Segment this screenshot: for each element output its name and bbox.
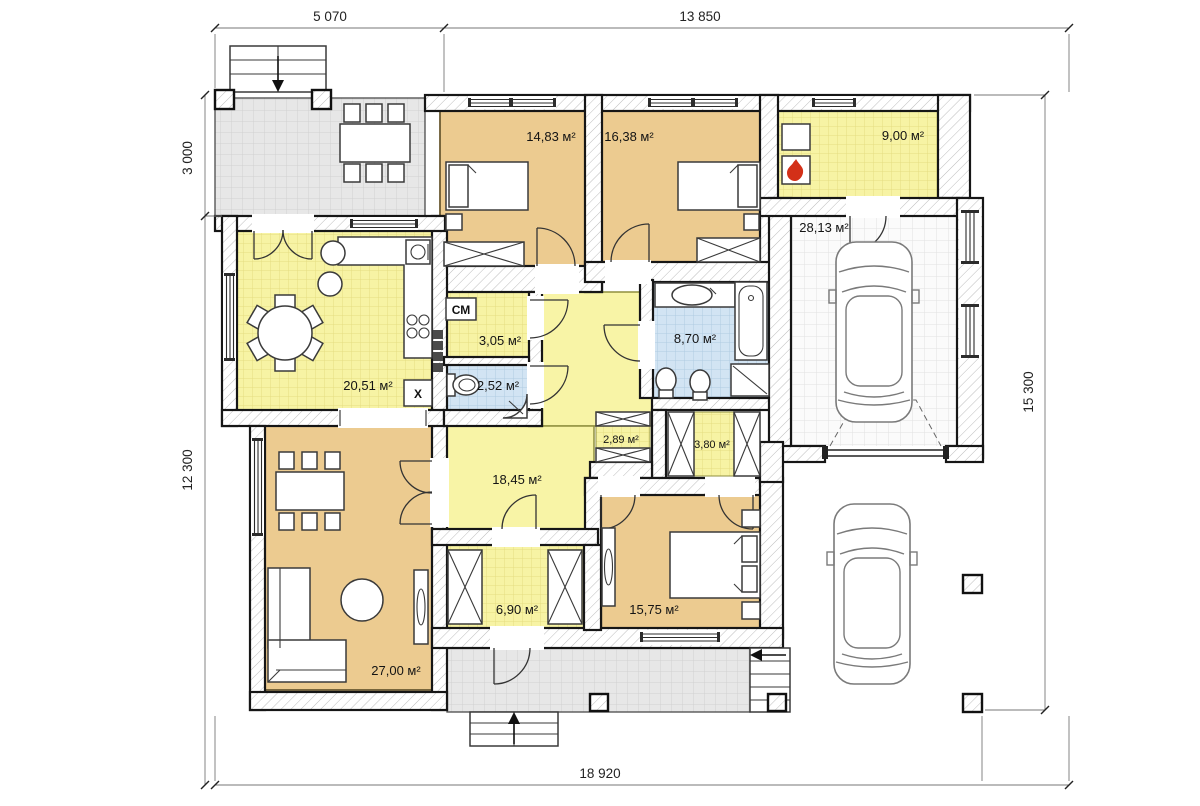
tv-icon	[414, 570, 428, 644]
window-icon	[223, 273, 236, 361]
room-label-closet-1: 2,89 м²	[603, 434, 639, 446]
coffee-table-icon	[341, 579, 383, 621]
wall-segment	[769, 198, 791, 458]
pillar-icon	[215, 90, 234, 109]
floor-plan: Х СМ	[0, 0, 1200, 806]
window-icon	[468, 96, 556, 109]
pillar-icon	[312, 90, 331, 109]
room-label-bedroom-2: 16,38 м²	[604, 129, 654, 144]
window-icon	[959, 304, 981, 358]
room-label-kitchen: 20,51 м²	[343, 378, 393, 393]
pillar-icon	[768, 694, 786, 711]
wall-segment	[760, 478, 783, 638]
washing-machine-label: СМ	[452, 303, 471, 317]
room-label-laundry: 3,05 м²	[479, 333, 522, 348]
bidet-icon	[690, 370, 710, 400]
pillar-icon	[963, 575, 982, 593]
wall-segment	[946, 446, 983, 462]
dining-table-icon	[276, 452, 344, 530]
dim-label-top-left: 5 070	[313, 9, 347, 24]
stairs-icon	[230, 46, 326, 92]
dim-label-top-right: 13 850	[679, 9, 720, 24]
pillar-icon	[963, 694, 982, 712]
fridge-box: Х	[404, 380, 432, 406]
wall-segment	[590, 462, 652, 478]
wardrobe-icon	[444, 242, 524, 266]
wall-segment	[652, 398, 777, 410]
window-icon	[350, 217, 418, 230]
car-icon	[829, 242, 919, 422]
wall-segment	[432, 628, 783, 648]
dim-label-left-bottom: 12 300	[180, 449, 195, 490]
room-label-bathroom: 8,70 м²	[674, 331, 717, 346]
hall-corridor-floor	[532, 292, 652, 426]
outdoor-dining-table-icon	[340, 104, 410, 182]
floor-plan-page: Х СМ	[0, 0, 1200, 806]
washing-machine-box: СМ	[446, 298, 476, 320]
pillar-icon	[590, 694, 608, 711]
window-icon	[812, 96, 856, 109]
wall-segment	[760, 442, 783, 482]
dim-label-bottom: 18 920	[579, 766, 620, 781]
fridge-label: Х	[414, 387, 422, 401]
wardrobe-icon	[697, 238, 760, 262]
room-label-bedroom-1: 14,83 м²	[526, 129, 576, 144]
wall-segment	[584, 545, 601, 630]
dim-label-right: 15 300	[1021, 371, 1036, 412]
window-icon	[251, 438, 264, 536]
bathtub-icon	[735, 282, 767, 360]
window-icon	[648, 96, 738, 109]
window-icon	[640, 630, 720, 645]
toilet-icon	[656, 368, 676, 398]
wall-segment	[652, 410, 666, 478]
room-label-bedroom-3: 15,75 м²	[629, 602, 679, 617]
stairs-icon	[470, 712, 558, 746]
room-label-entry: 6,90 м²	[496, 602, 539, 617]
room-label-closet-2: 3,80 м²	[694, 439, 730, 451]
room-label-hall: 18,45 м²	[492, 472, 542, 487]
room-label-wc: 2,52 м²	[477, 378, 520, 393]
room-label-garage: 28,13 м²	[799, 220, 849, 235]
shower-icon	[731, 364, 769, 396]
room-label-boiler: 9,00 м²	[882, 128, 925, 143]
car-icon	[827, 504, 917, 684]
tv-icon	[602, 528, 615, 606]
sink-icon	[655, 283, 735, 307]
round-dining-table-icon	[247, 295, 323, 371]
wall-segment	[938, 95, 970, 198]
toilet-icon	[447, 374, 479, 396]
wall-segment	[444, 357, 529, 365]
dim-label-left-top: 3 000	[180, 141, 195, 175]
wall-segment	[250, 692, 447, 710]
room-label-living: 27,00 м²	[371, 663, 421, 678]
window-icon	[959, 210, 981, 264]
